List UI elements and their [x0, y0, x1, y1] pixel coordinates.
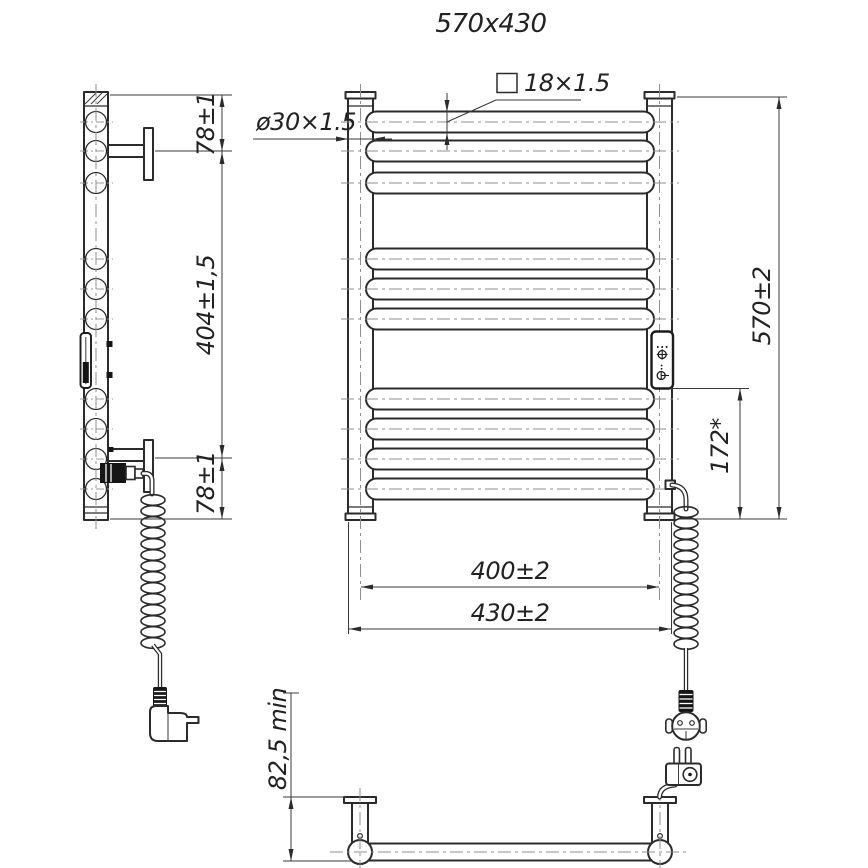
drawing-canvas: 18×1.5 ø30×1.5 570±2 172*	[0, 0, 868, 868]
dim-side-bracket-span: 404±1,5	[192, 255, 220, 356]
tube-section-callout: 18×1.5	[445, 69, 610, 150]
square-section-symbol	[497, 74, 517, 93]
width-dims: 400±2 430±2	[349, 522, 672, 634]
front-cord-spiral	[674, 507, 698, 650]
dim-mounting-width: 400±2	[471, 557, 550, 585]
side-cord-sleeve	[153, 687, 167, 707]
dim-overall-height: 570±2	[748, 267, 776, 346]
technical-drawing-svg: 18×1.5 ø30×1.5 570±2 172*	[0, 0, 868, 868]
dim-overall-width: 430±2	[471, 599, 550, 627]
dim-panel-offset: 172*	[706, 418, 734, 474]
dim-tube-section: 18×1.5	[524, 69, 610, 97]
side-view: 78±1 404±1,5 78±1	[80, 84, 232, 741]
panel-offset-dim: 172*	[670, 389, 749, 520]
bottom-plug-assembly	[660, 748, 702, 798]
front-cord-sleeve	[679, 690, 694, 712]
dim-wall-distance: 82,5 min	[264, 688, 292, 790]
dim-side-top-offset: 78±1	[192, 92, 220, 156]
tube-rungs	[366, 112, 654, 500]
control-panel	[652, 332, 674, 389]
dim-side-bottom-offset: 78±1	[192, 451, 220, 515]
front-view: 18×1.5 ø30×1.5 570±2 172*	[253, 69, 787, 740]
bottom-view: 82,5 min	[264, 688, 701, 868]
sensor-dot-lower	[107, 372, 113, 378]
sensor-dot-upper	[107, 341, 113, 347]
plug-side-view	[150, 706, 199, 741]
side-cord-spiral	[141, 495, 165, 649]
wall-distance-dim: 82,5 min	[264, 688, 352, 861]
centerlines-bottom	[330, 788, 690, 868]
page-title: 570x430	[435, 9, 546, 39]
heating-element	[100, 463, 143, 483]
plug-face-view	[666, 712, 706, 740]
side-top-bracket	[108, 128, 153, 180]
dim-post-diameter: ø30×1.5	[255, 108, 356, 136]
side-power-cord	[141, 474, 199, 742]
side-control-panel	[81, 333, 92, 388]
